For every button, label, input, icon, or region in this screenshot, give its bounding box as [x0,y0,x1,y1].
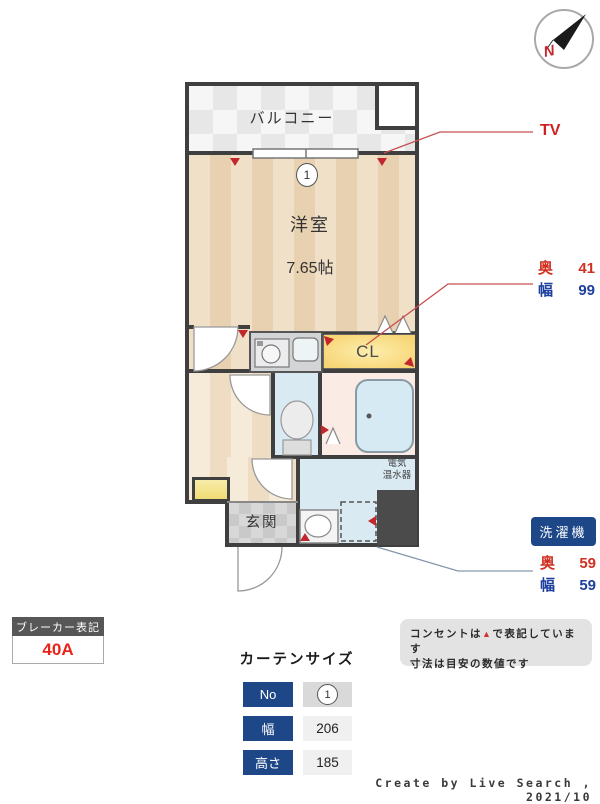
curtain-row-height-header: 高さ [243,750,293,775]
tv-label: TV [540,122,560,140]
circled-number: 1 [317,684,338,705]
curtain-title-text: カーテンサイズ [239,648,354,669]
width-value: 99 [578,280,595,302]
closet-width-row: 幅 99 [538,280,595,302]
legend-note: コンセントは▲で表記しています 寸法は目安の数値です [400,619,592,666]
water-heater-label: 電気 温水器 [377,458,417,482]
washer-leader-line [377,547,533,571]
breaker-value: 40A [12,636,104,664]
curtain-row-no-header: No [243,682,293,707]
window-number: 1 [296,164,318,186]
shoe-cabinet [192,477,230,502]
curtain-no-value: 1 [324,689,330,701]
curtain-row-width-header: 幅 [243,716,293,741]
outlet-marker-icon: ▲ [482,629,492,639]
water-heater-line2: 温水器 [377,470,417,482]
breaker-box: ブレーカー表記 40A [12,617,104,664]
depth-value: 41 [578,258,595,280]
room-size-label: 7.65帖 [250,254,370,278]
curtain-width-label: 幅 [261,719,274,738]
washer-dimensions: 奥 59 幅 59 [540,553,596,597]
note-line2-text: 寸法は目安の数値です [410,658,530,670]
depth-label: 奥 [538,258,553,280]
breaker-title-text: ブレーカー表記 [16,619,100,635]
curtain-row-width-value: 206 [303,716,352,741]
width-label: 幅 [538,280,553,302]
room-name-label: 洋室 [250,212,370,236]
entrance-label: 玄関 [230,511,294,531]
entrance-text: 玄関 [246,511,279,532]
closet-dimensions: 奥 41 幅 99 [538,258,595,302]
curtain-no-label: No [260,687,277,702]
entrance-door [238,547,282,591]
breaker-value-text: 40A [42,640,73,660]
curtain-height-value: 185 [316,755,339,770]
washer-width-row: 幅 59 [540,575,596,597]
washer-badge: 洗濯機 [531,517,596,546]
toilet-room-floor [275,373,320,457]
bathroom-floor [322,373,417,457]
depth-value: 59 [579,553,596,575]
compass-north-label: N [537,40,560,62]
width-value: 59 [579,575,596,597]
circled-number: 1 [296,163,318,187]
note-pre-text: コンセントは [410,628,482,640]
washer-badge-text: 洗濯機 [539,522,587,541]
breaker-title: ブレーカー表記 [12,617,104,636]
balcony-text: バルコニー [250,107,335,128]
washer-depth-row: 奥 59 [540,553,596,575]
depth-label: 奥 [540,553,555,575]
balcony-label: バルコニー [212,106,372,128]
window-number-text: 1 [304,168,311,182]
room-size-text: 7.65帖 [286,254,333,278]
curtain-row-height-value: 185 [303,750,352,775]
entrance-hall-floor [227,457,296,502]
legend-note-line1: コンセントは▲で表記しています [410,627,582,657]
legend-note-line2: 寸法は目安の数値です [410,657,582,672]
water-heater-line1: 電気 [377,458,417,470]
curtain-row-no-value: 1 [303,682,352,707]
closet-text: CL [356,342,380,362]
curtain-title: カーテンサイズ [227,648,367,668]
closet-depth-row: 奥 41 [538,258,595,280]
curtain-height-label: 高さ [255,753,281,772]
room-name-text: 洋室 [290,211,330,237]
width-label: 幅 [540,575,555,597]
curtain-width-value: 206 [316,721,339,736]
tv-text: TV [540,122,560,139]
compass-north-text: N [542,42,556,61]
closet-label: CL [332,340,404,364]
